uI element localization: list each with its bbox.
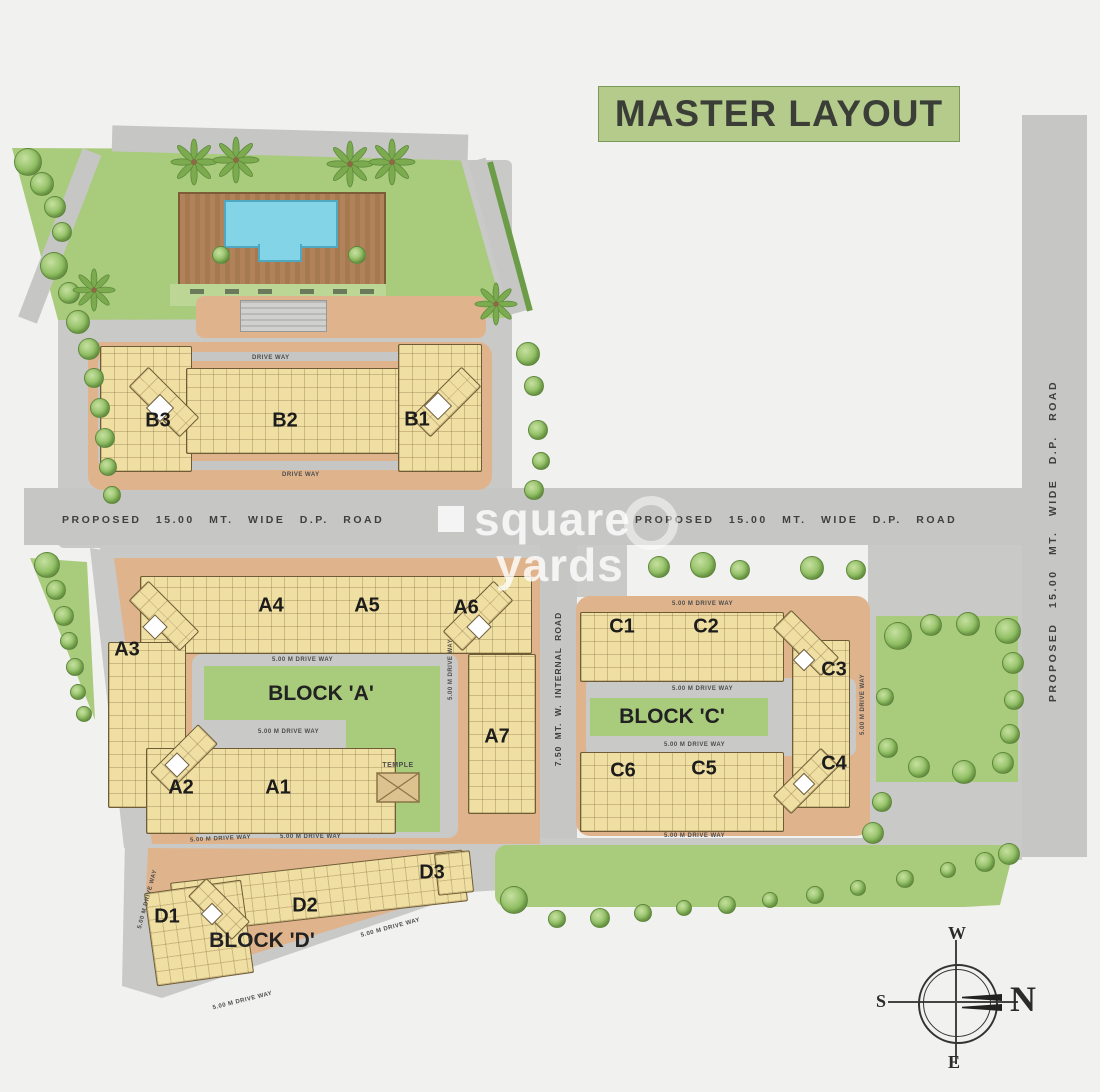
tree-icon (800, 556, 824, 580)
palm-tree-icon (474, 282, 518, 326)
compass-east-label: E (948, 1052, 960, 1073)
tree-icon (30, 172, 54, 196)
driveway-label: 5.00 M DRIVE WAY (258, 729, 319, 735)
tree-icon (676, 900, 692, 916)
tree-icon (99, 458, 117, 476)
driveway-label: 5.00 M DRIVE WAY (672, 686, 733, 692)
tree-icon (70, 684, 86, 700)
tree-icon (348, 246, 366, 264)
building-label-a7: A7 (484, 726, 510, 749)
temple-icon (376, 772, 420, 803)
tree-icon (590, 908, 610, 928)
tree-icon (862, 822, 884, 844)
tree-icon (52, 222, 72, 242)
tree-icon (46, 580, 66, 600)
bench (190, 289, 204, 294)
watermark-ring-icon (624, 496, 678, 550)
dp-road-label-east: PROPOSED 15.00 MT. WIDE D.P. ROAD (635, 514, 935, 526)
tree-icon (528, 420, 548, 440)
driveway-label: DRIVE WAY (282, 472, 320, 478)
watermark-word2: yards (496, 538, 624, 592)
building-label-c4: C4 (821, 753, 847, 776)
tree-icon (1002, 652, 1024, 674)
driveway-label: 5.00 M DRIVE WAY (860, 674, 866, 735)
tree-icon (806, 886, 824, 904)
compass-west-label: W (948, 923, 966, 944)
driveway-label: 5.00 M DRIVE WAY (212, 991, 273, 1012)
building-label-a1: A1 (265, 777, 291, 800)
tree-icon (34, 552, 60, 578)
bench (360, 289, 374, 294)
tree-icon (78, 338, 100, 360)
squareyards-logo-icon (438, 506, 464, 532)
tree-icon (896, 870, 914, 888)
palm-tree-icon (170, 138, 218, 186)
tree-icon (40, 252, 68, 280)
tree-icon (103, 486, 121, 504)
tree-icon (718, 896, 736, 914)
tree-icon (524, 376, 544, 396)
master-layout-plan: DRIVE WAY DRIVE WAY 5.00 M DRIVE WAY 5.0… (0, 0, 1100, 1092)
building-label-a3: A3 (114, 639, 140, 662)
tree-icon (690, 552, 716, 578)
building-label-a6: A6 (453, 597, 479, 620)
tree-icon (876, 688, 894, 706)
tree-icon (548, 910, 566, 928)
tree-icon (920, 614, 942, 636)
tree-icon (60, 632, 78, 650)
tree-icon (940, 862, 956, 878)
tree-icon (878, 738, 898, 758)
tree-icon (975, 852, 995, 872)
temple-label: TEMPLE (382, 762, 413, 769)
palm-tree-icon (72, 268, 116, 312)
south-green-strip (495, 845, 1015, 907)
palm-tree-icon (368, 138, 416, 186)
bench (225, 289, 239, 294)
building-label-c1: C1 (609, 616, 635, 639)
palm-tree-icon (326, 140, 374, 188)
tree-icon (995, 618, 1021, 644)
driveway-label: 5.00 M DRIVE WAY (664, 833, 725, 839)
tree-icon (730, 560, 750, 580)
driveway-label: 5.00 M DRIVE WAY (280, 834, 341, 840)
driveway-label: 5.00 M DRIVE WAY (664, 742, 725, 748)
bench (300, 289, 314, 294)
internal-road-label: 7.50 MT. W. INTERNAL ROAD (553, 559, 563, 819)
tree-icon (908, 756, 930, 778)
tree-icon (884, 622, 912, 650)
compass-north-label: N (1010, 978, 1036, 1020)
tree-icon (846, 560, 866, 580)
building-label-c3: C3 (821, 659, 847, 682)
tree-icon (634, 904, 652, 922)
swimming-pool (224, 200, 338, 248)
driveway-label: 5.00 M DRIVE WAY (672, 601, 733, 607)
building-label-b3: B3 (145, 410, 171, 433)
tree-icon (992, 752, 1014, 774)
building-label-d2: D2 (292, 895, 318, 918)
driveway-label: DRIVE WAY (252, 355, 290, 361)
tree-icon (872, 792, 892, 812)
tree-icon (850, 880, 866, 896)
tree-icon (90, 398, 110, 418)
building-label-a5: A5 (354, 595, 380, 618)
compass-inner-circle (923, 969, 991, 1037)
driveway-label: 5.00 M DRIVE WAY (272, 657, 333, 663)
palm-tree-icon (212, 136, 260, 184)
entrance-steps (240, 300, 327, 332)
dp-road-label-west: PROPOSED 15.00 MT. WIDE D.P. ROAD (62, 514, 362, 526)
building-label-a4: A4 (258, 595, 284, 618)
tree-icon (212, 246, 230, 264)
swimming-pool-step (258, 244, 302, 262)
tree-icon (95, 428, 115, 448)
driveway-label: 5.00 M DRIVE WAY (448, 639, 454, 700)
tree-icon (516, 342, 540, 366)
tree-icon (66, 658, 84, 676)
compass-south-label: S (876, 991, 886, 1012)
tree-icon (76, 706, 92, 722)
building-label-b1: B1 (404, 409, 430, 432)
tree-icon (54, 606, 74, 626)
tree-icon (500, 886, 528, 914)
tree-icon (762, 892, 778, 908)
block-a-label: BLOCK 'A' (268, 682, 374, 706)
building-label-c6: C6 (610, 760, 636, 783)
tree-icon (1004, 690, 1024, 710)
building-label-a2: A2 (168, 777, 194, 800)
tree-icon (1000, 724, 1020, 744)
tree-icon (44, 196, 66, 218)
tree-icon (84, 368, 104, 388)
block-c-label: BLOCK 'C' (619, 705, 725, 729)
tree-icon (66, 310, 90, 334)
building-label-c5: C5 (691, 758, 717, 781)
page-title: MASTER LAYOUT (598, 86, 960, 142)
tree-icon (648, 556, 670, 578)
tree-icon (952, 760, 976, 784)
bench (258, 289, 272, 294)
dp-road-label-vertical: PROPOSED 15.00 MT. WIDE D.P. ROAD (1047, 376, 1059, 706)
building-label-c2: C2 (693, 616, 719, 639)
building-label-b2: B2 (272, 410, 298, 433)
building-label-d3: D3 (419, 862, 445, 885)
tree-icon (956, 612, 980, 636)
block-d-label: BLOCK 'D' (209, 929, 315, 953)
building-label-d1: D1 (154, 906, 180, 929)
tree-icon (998, 843, 1020, 865)
tree-icon (532, 452, 550, 470)
bench (333, 289, 347, 294)
